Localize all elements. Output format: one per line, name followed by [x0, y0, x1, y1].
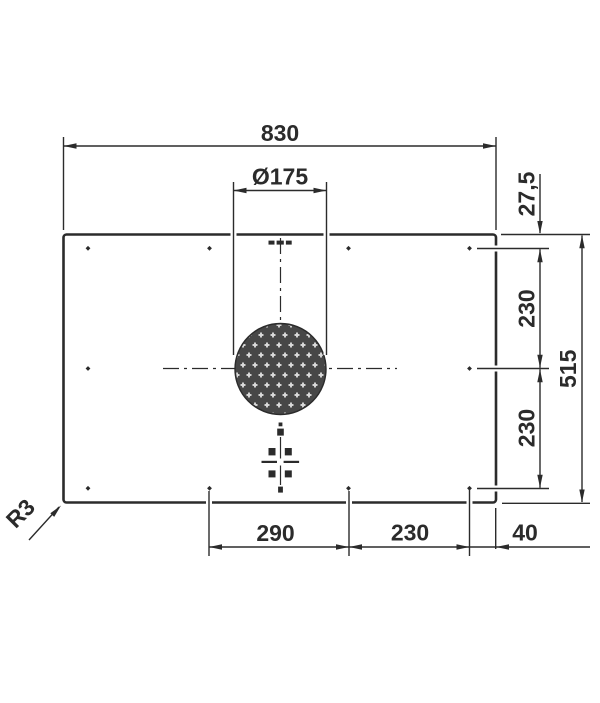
dim-text-bottom-left-span: 290 [256, 520, 294, 546]
dim-text-bottom-right-span: 40 [512, 520, 538, 546]
technical-drawing: 830 Ø175 27,5 230 230 515 290 230 40 R3 [0, 0, 600, 703]
dim-text-bottom-mid-span: 230 [391, 520, 429, 546]
dim-text-vent-diameter: Ø175 [252, 164, 308, 190]
dim-text-overall-depth: 515 [555, 349, 581, 388]
top-center-mark [269, 241, 292, 245]
drawing-canvas: 830 Ø175 27,5 230 230 515 290 230 40 R3 [0, 0, 600, 703]
dim-text-top-offset: 27,5 [514, 171, 540, 216]
dim-text-corner-radius: R3 [1, 494, 40, 533]
dim-text-row-spacing-upper: 230 [514, 289, 540, 327]
perforated-vent-circle [235, 324, 326, 415]
dim-text-overall-width: 830 [261, 120, 299, 146]
dim-text-row-spacing-lower: 230 [514, 409, 540, 447]
